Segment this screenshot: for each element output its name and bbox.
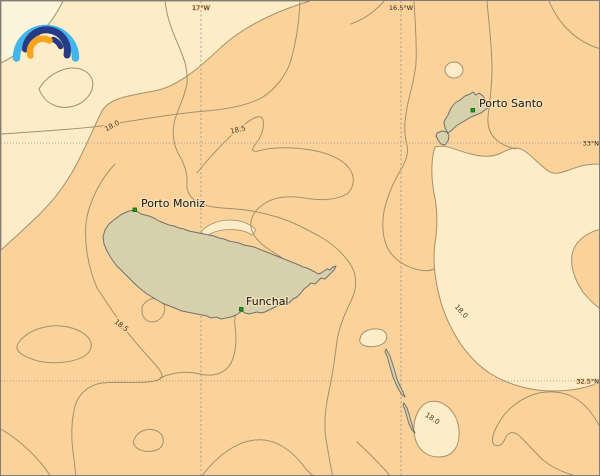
funchal-marker xyxy=(240,308,244,312)
lon-label-16-5w: 16.5°W xyxy=(389,4,414,12)
lat-label-33n: 33°N xyxy=(583,140,600,148)
porto-santo-label: Porto Santo xyxy=(479,97,543,110)
lon-label-17w: 17°W xyxy=(192,4,211,12)
lat-label-32-5n: 32.5°N xyxy=(576,378,599,386)
porto-santo-marker xyxy=(471,109,475,113)
band-oval-north xyxy=(445,62,463,78)
porto-moniz-label: Porto Moniz xyxy=(141,197,205,210)
porto-moniz-marker xyxy=(133,208,137,212)
funchal-label: Funchal xyxy=(246,295,289,308)
map-canvas[interactable]: 18.0 18.5 18.5 18.0 18.0 Porto Moniz Fun… xyxy=(1,1,600,476)
map-window: 18.0 18.5 18.5 18.0 18.0 Porto Moniz Fun… xyxy=(0,0,600,476)
